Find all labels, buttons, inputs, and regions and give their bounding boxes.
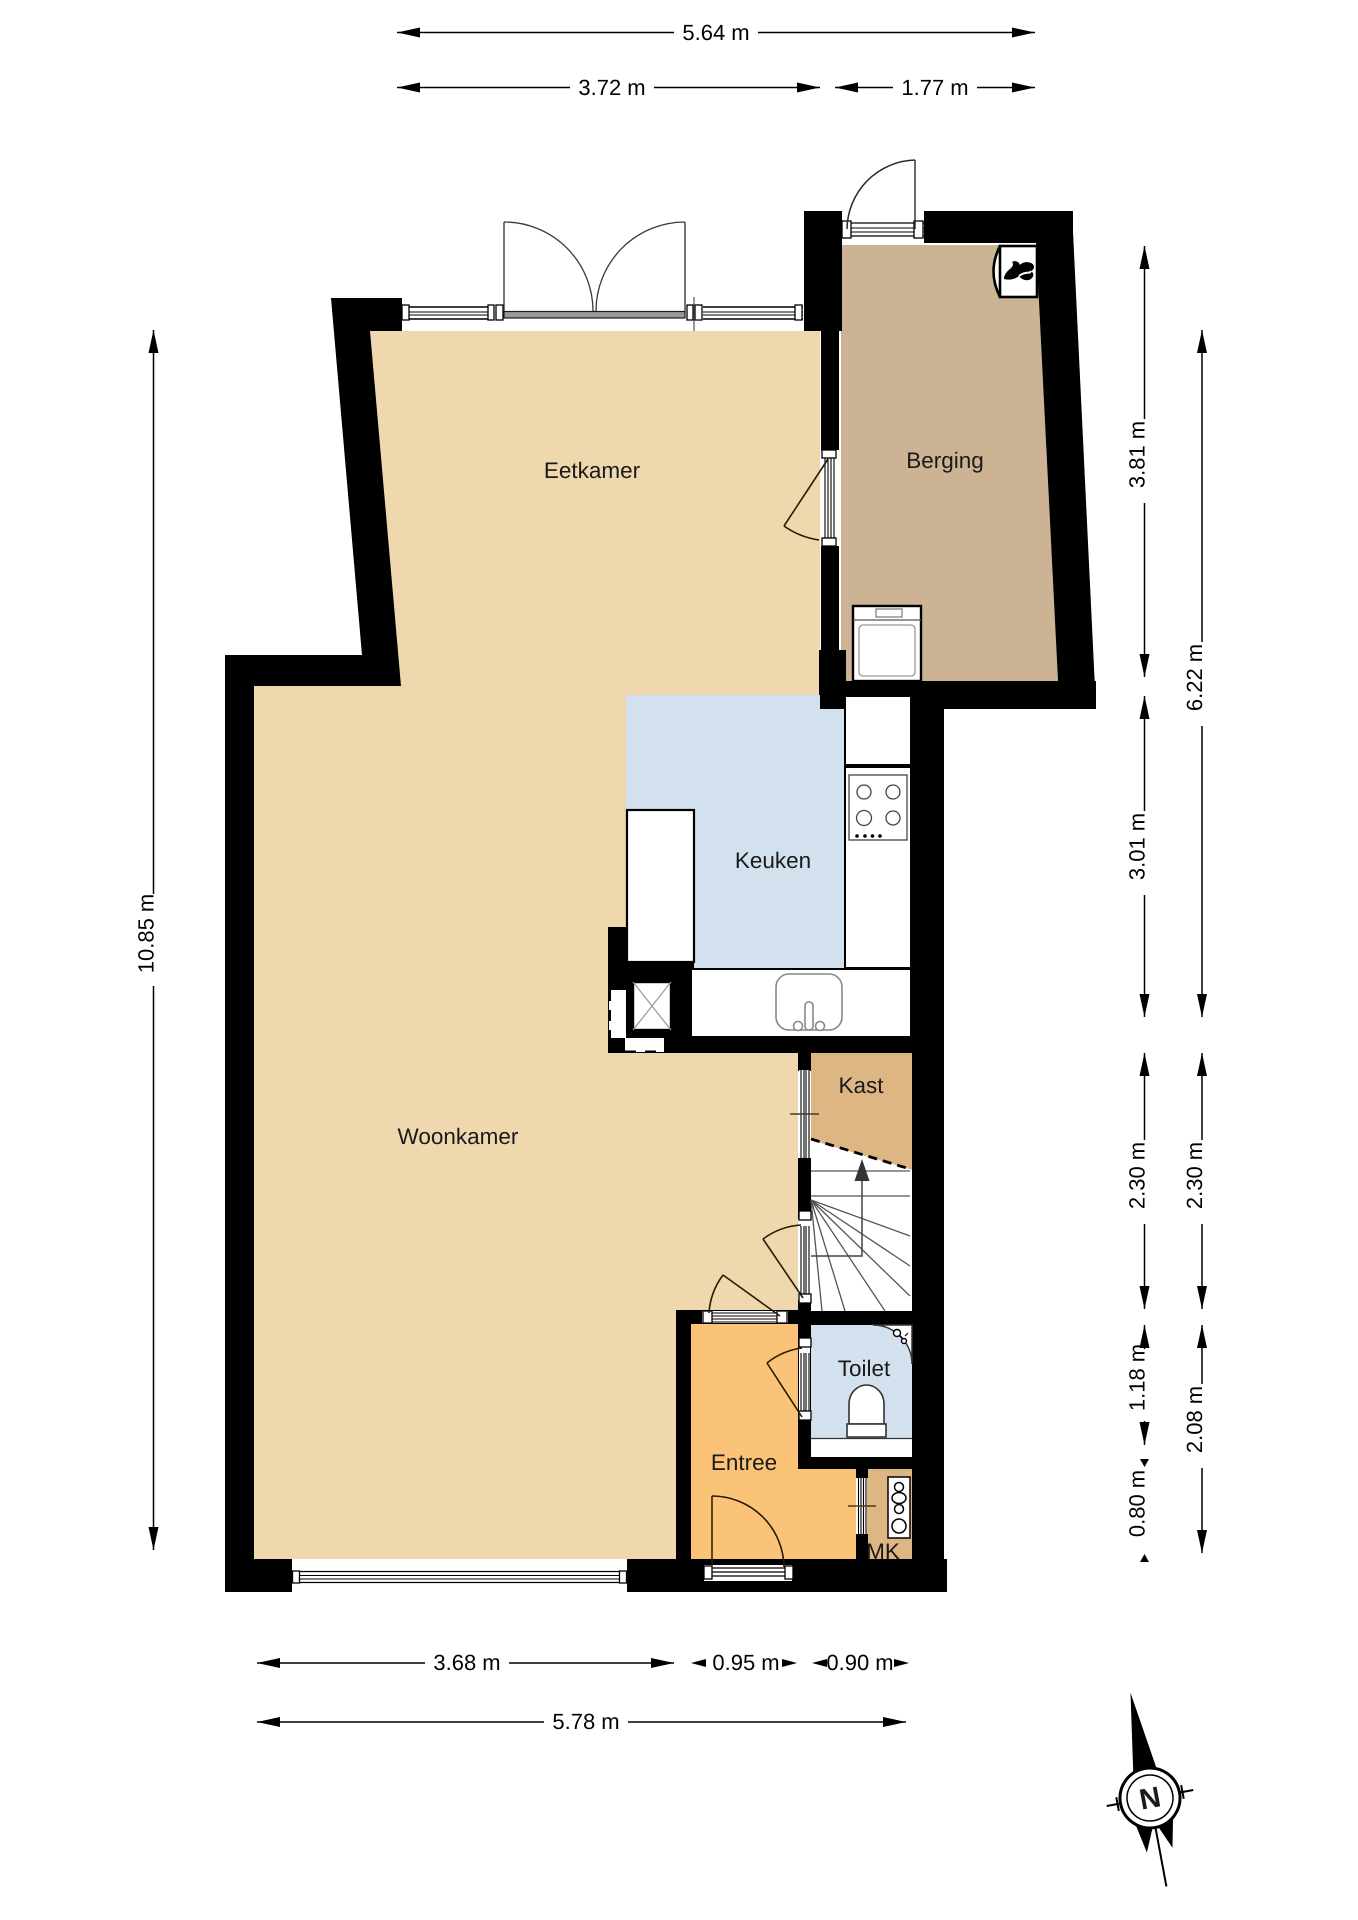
svg-text:2.08 m: 2.08 m — [1182, 1386, 1207, 1453]
svg-text:0.80 m: 0.80 m — [1125, 1470, 1150, 1537]
svg-text:0.95 m: 0.95 m — [712, 1650, 779, 1675]
svg-text:Kast: Kast — [838, 1073, 884, 1098]
svg-text:MK: MK — [866, 1539, 900, 1564]
svg-text:3.81 m: 3.81 m — [1125, 421, 1150, 488]
svg-text:3.72 m: 3.72 m — [578, 75, 645, 100]
svg-text:2.30 m: 2.30 m — [1125, 1142, 1150, 1209]
svg-text:Entree: Entree — [711, 1450, 777, 1475]
svg-text:5.78 m: 5.78 m — [552, 1709, 619, 1734]
svg-text:0.90 m: 0.90 m — [826, 1650, 893, 1675]
svg-text:1.18 m: 1.18 m — [1125, 1344, 1150, 1411]
svg-text:Woonkamer: Woonkamer — [398, 1124, 519, 1149]
svg-text:Eetkamer: Eetkamer — [544, 458, 641, 483]
svg-text:5.64 m: 5.64 m — [682, 20, 749, 45]
svg-text:2.30 m: 2.30 m — [1182, 1142, 1207, 1209]
svg-text:Keuken: Keuken — [735, 848, 811, 873]
svg-text:1.77 m: 1.77 m — [901, 75, 968, 100]
svg-text:Toilet: Toilet — [838, 1356, 891, 1381]
svg-text:Berging: Berging — [906, 448, 984, 473]
svg-text:3.01 m: 3.01 m — [1125, 813, 1150, 880]
svg-text:6.22 m: 6.22 m — [1182, 644, 1207, 711]
svg-text:3.68 m: 3.68 m — [433, 1650, 500, 1675]
svg-text:10.85 m: 10.85 m — [134, 894, 159, 974]
